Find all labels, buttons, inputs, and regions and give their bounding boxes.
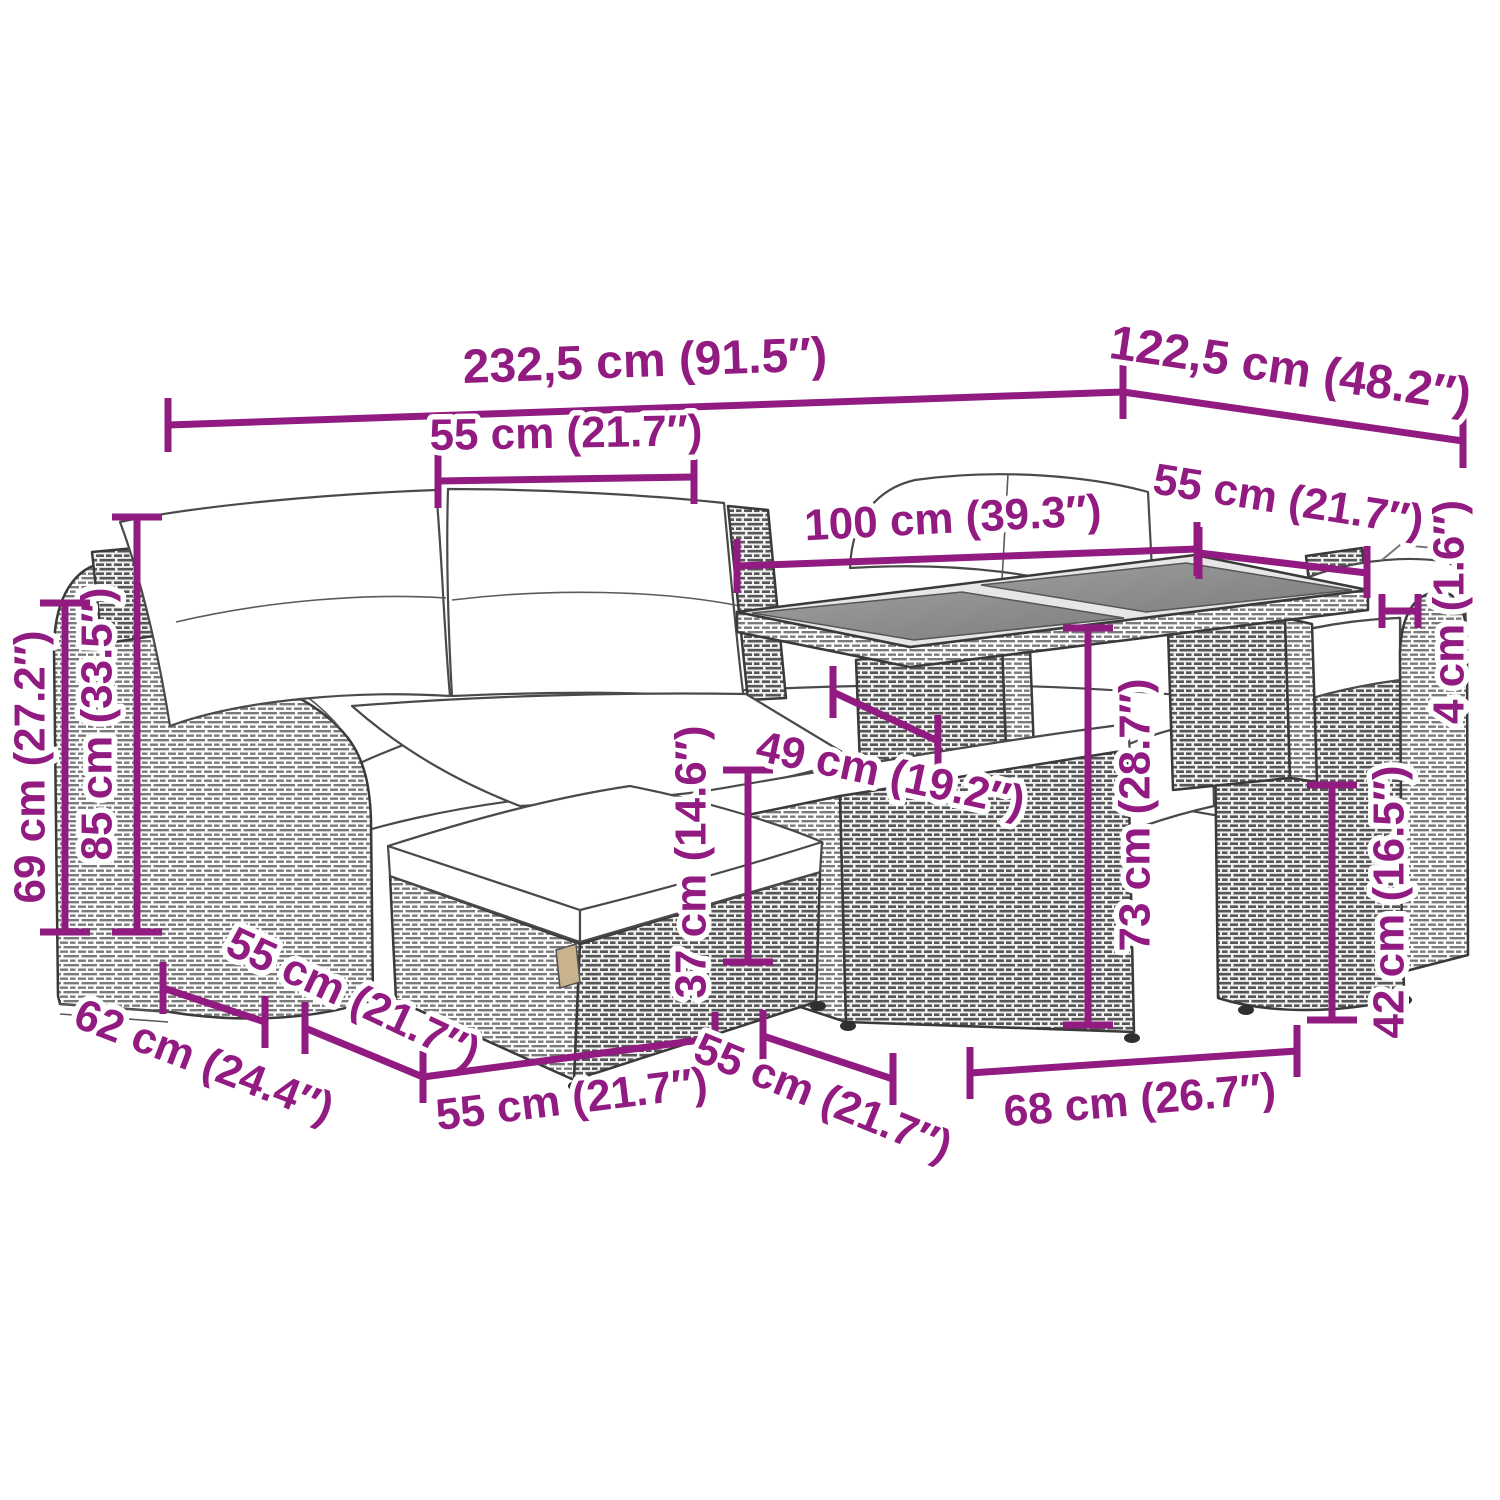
dim-ottoman-height-label: 37 cm (14.6″) xyxy=(667,725,716,998)
table-pedestal-right-side xyxy=(1285,618,1317,782)
dim-table-height-label: 73 cm (28.7″) xyxy=(1111,678,1160,951)
dim-tabletop-thickness-label: 4 cm (1.6″) xyxy=(1425,500,1474,724)
dimension-diagram: 232,5 cm (91.5″) 122,5 cm (48.2″) 55 cm … xyxy=(0,0,1500,1500)
back-cushion-2 xyxy=(447,489,744,700)
dim-table-base-width-label: 68 cm (26.7″) xyxy=(1002,1064,1278,1137)
dim-ottoman-depth: 55 cm (21.7″) xyxy=(687,1010,958,1171)
back-cushion-1 xyxy=(120,490,450,726)
table-pedestal-right xyxy=(1168,618,1290,790)
dim-seat-height-label: 42 cm (16.5″) xyxy=(1365,765,1414,1038)
ottoman-left-latch xyxy=(556,944,580,988)
dim-ottoman-depth-label: 55 cm (21.7″) xyxy=(687,1023,958,1171)
dim-total-depth-label: 122,5 cm (48.2″) xyxy=(1106,316,1474,422)
dim-table-width-label: 55 cm (21.7″) xyxy=(1150,455,1427,546)
dim-total-depth: 122,5 cm (48.2″) xyxy=(1106,316,1474,468)
dim-backrest-width-label: 55 cm (21.7″) xyxy=(429,406,703,460)
diagram-canvas: 232,5 cm (91.5″) 122,5 cm (48.2″) 55 cm … xyxy=(0,0,1500,1500)
dim-total-width-label: 232,5 cm (91.5″) xyxy=(462,328,828,394)
dim-arm-height-label: 69 cm (27.2″) xyxy=(6,630,55,903)
dim-backrest-height-label: 85 cm (33.5″) xyxy=(73,587,122,860)
